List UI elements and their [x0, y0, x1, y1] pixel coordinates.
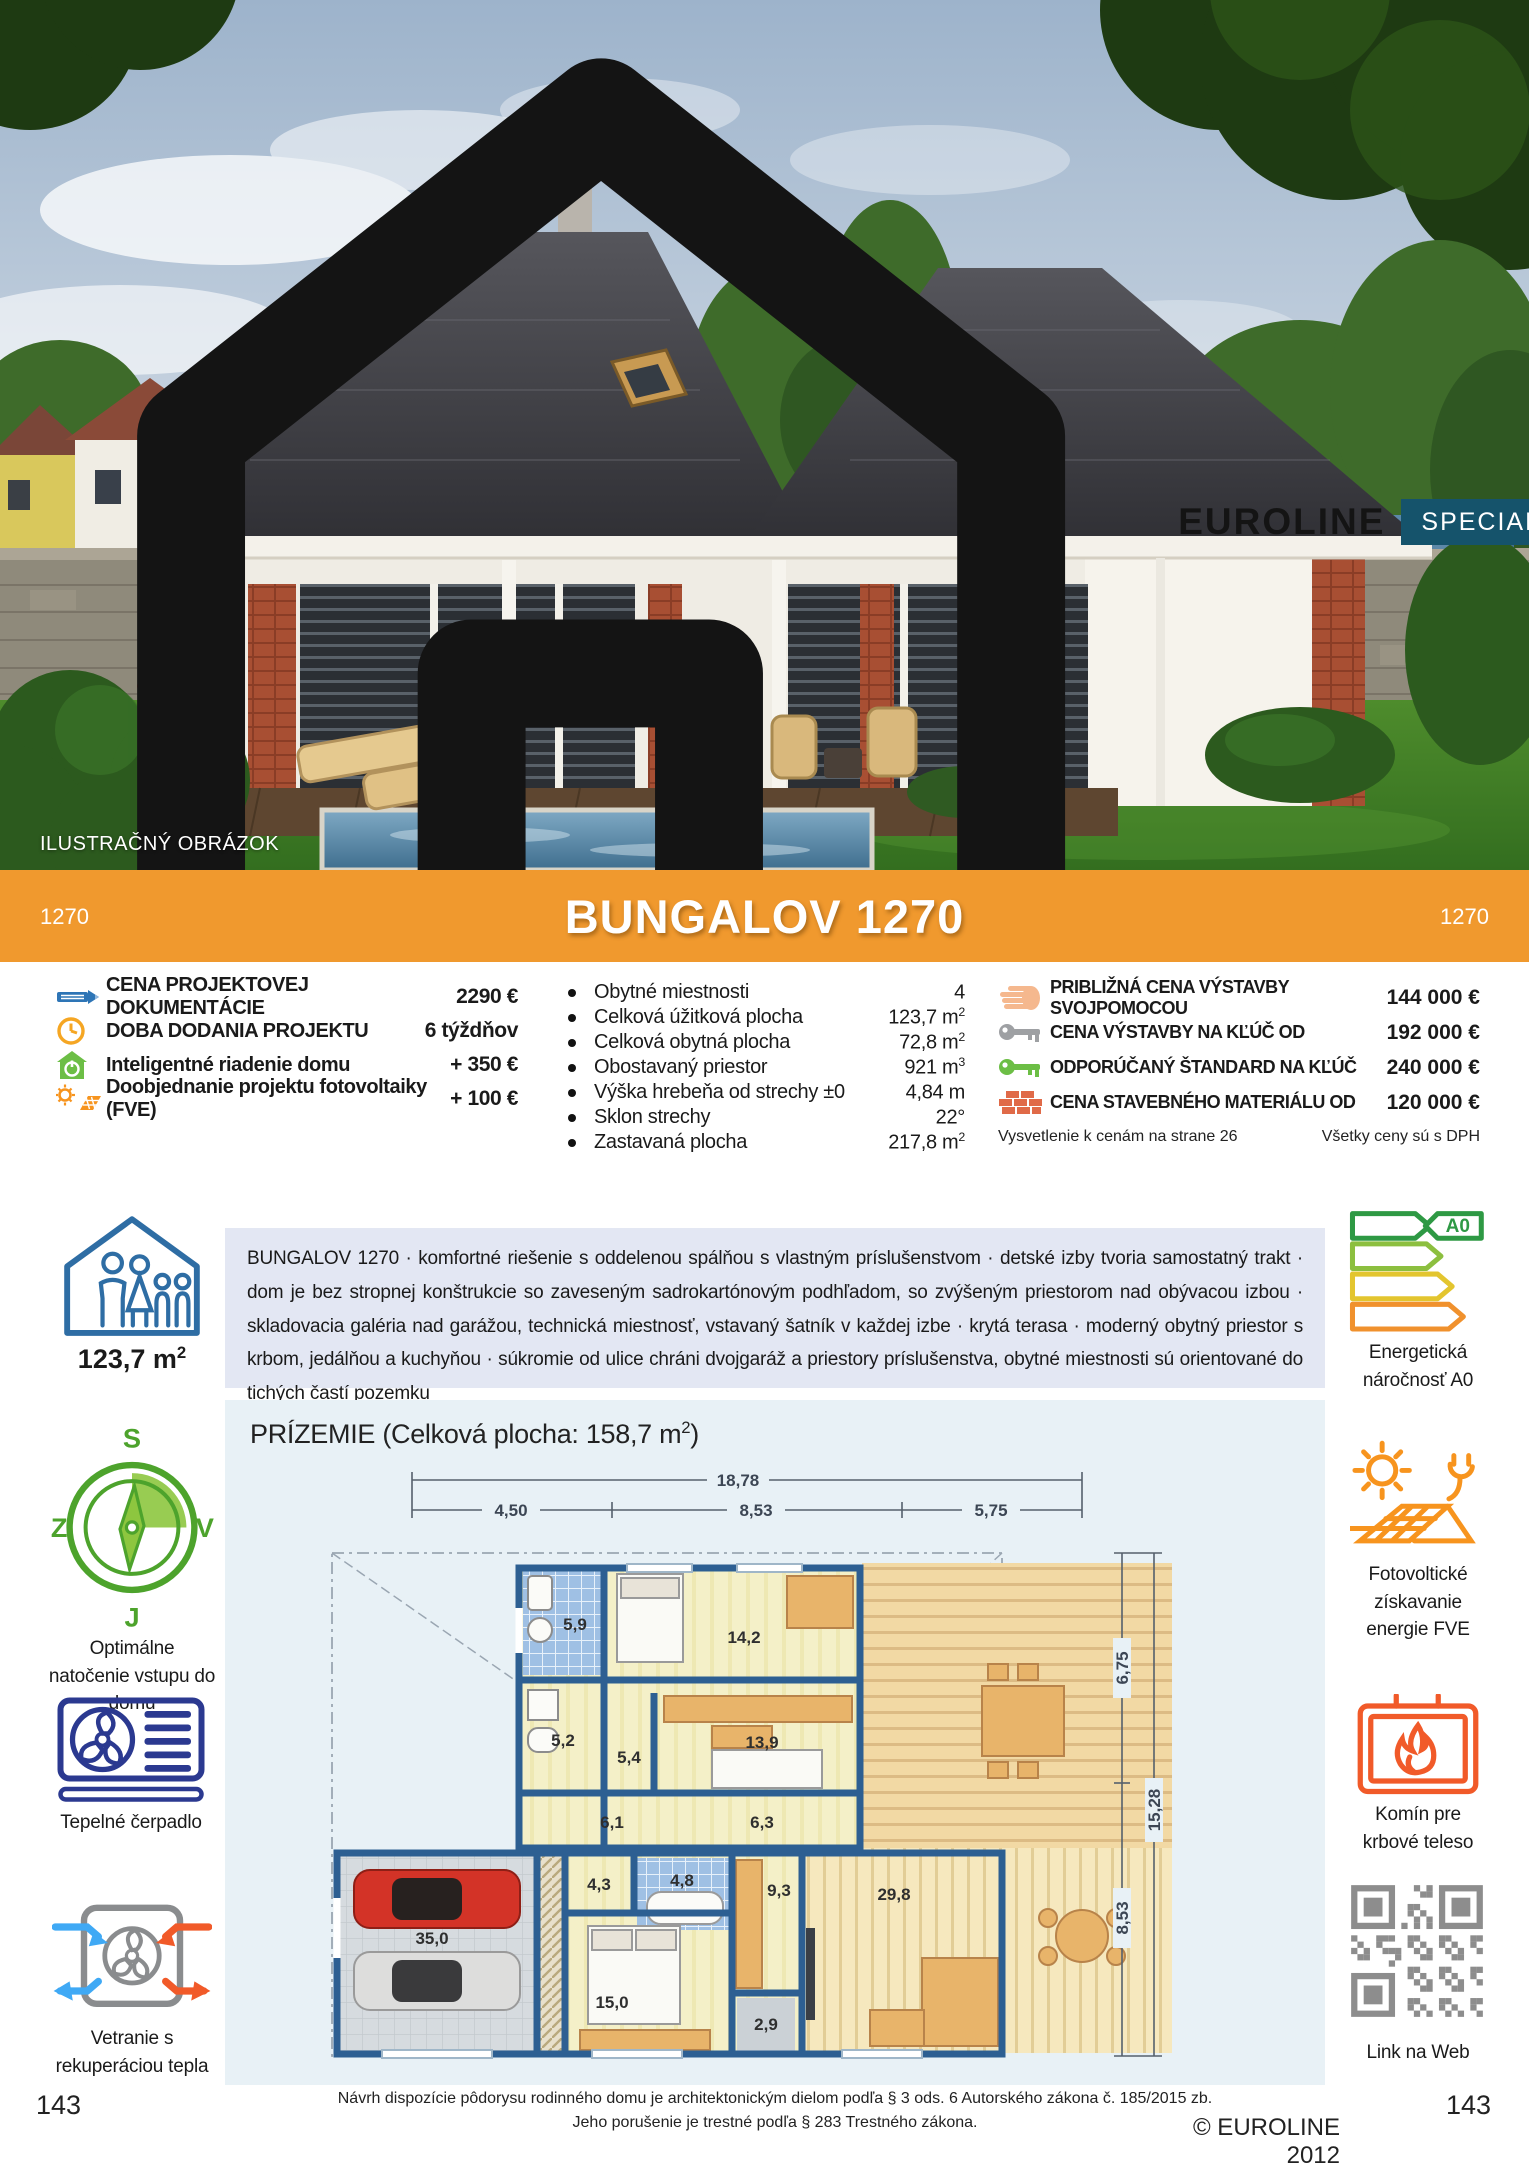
svg-text:A0: A0	[1446, 1216, 1470, 1237]
svg-text:6,3: 6,3	[750, 1813, 774, 1832]
price-row: DOBA DODANIA PROJEKTU 6 týždňov	[56, 1014, 518, 1048]
euroline-house-icon	[40, 26, 1162, 870]
usable-area-block: 123,7 m2	[52, 1210, 212, 1375]
photovoltaics-icon	[1350, 1438, 1486, 1556]
photo-caption: ILUSTRAČNÝ OBRÁZOK	[40, 833, 279, 856]
svg-text:J: J	[124, 1602, 139, 1630]
floorplan-drawing: 5,9 14,2 5,2 5,4 13,9 6,1 6,3 4,3 4,8 9,…	[282, 1458, 1182, 2078]
svg-text:Z: Z	[51, 1512, 68, 1543]
photovoltaics-label: Fotovoltické získavanie energie FVE	[1350, 1561, 1486, 1644]
project-code-right: 1270	[1440, 904, 1489, 930]
pencil-icon	[56, 986, 106, 1008]
spec-row: Celková obytná plocha72,8 m2	[560, 1030, 965, 1055]
svg-text:5,4: 5,4	[617, 1748, 641, 1767]
house-family-icon	[52, 1210, 212, 1338]
svg-text:2,9: 2,9	[754, 2015, 778, 2034]
svg-text:5,75: 5,75	[974, 1501, 1007, 1520]
bullet-icon	[568, 989, 576, 997]
page-number-right: 143	[1435, 2090, 1491, 2121]
key-grey-icon	[998, 1022, 1050, 1044]
svg-text:15,0: 15,0	[595, 1993, 628, 2012]
price-note-right: Všetky ceny sú s DPH	[1322, 1128, 1480, 1146]
description-text: BUNGALOV 1270 · komfortné riešenie s odd…	[247, 1242, 1303, 1411]
spec-row: Celková úžitková plocha123,7 m2	[560, 1005, 965, 1030]
svg-text:5,2: 5,2	[551, 1731, 575, 1750]
svg-text:6,1: 6,1	[600, 1813, 624, 1832]
heatpump-label: Tepelné čerpadlo	[56, 1809, 206, 1837]
svg-text:8,53: 8,53	[1113, 1901, 1132, 1934]
euroline-logo: EUROLINE SPECIAL S	[40, 26, 1529, 870]
heatpump-block: Tepelné čerpadlo	[56, 1696, 206, 1837]
key-green-icon	[998, 1057, 1050, 1079]
svg-text:5,9: 5,9	[563, 1615, 587, 1634]
ventilation-icon	[52, 1898, 212, 2020]
clock-icon	[56, 1016, 106, 1046]
brand-name: EUROLINE	[1178, 501, 1385, 543]
photovoltaics-block: Fotovoltické získavanie energie FVE	[1350, 1438, 1486, 1644]
ventilation-label: Vetranie s rekuperáciou tepla	[52, 2025, 212, 2080]
house-photo: EUROLINE SPECIAL S ILUSTRAČNÝ OBRÁZOK	[0, 0, 1529, 870]
special-badge-label: SPECIAL	[1421, 508, 1529, 537]
pricing-left-column: CENA PROJEKTOVEJ DOKUMENTÁCIE 2290 € DOB…	[56, 980, 518, 1116]
page-title: BUNGALOV 1270	[0, 889, 1529, 944]
energy-rating-block: A0 Energetická náročnosť A0	[1348, 1208, 1488, 1394]
spec-row: Zastavaná plocha217,8 m2	[560, 1130, 965, 1155]
bricks-icon	[998, 1090, 1050, 1116]
price-row: CENA PROJEKTOVEJ DOKUMENTÁCIE 2290 €	[56, 980, 518, 1014]
svg-text:35,0: 35,0	[415, 1929, 448, 1948]
svg-text:S: S	[123, 1425, 141, 1454]
fireplace-block: Komín pre krbové teleso	[1354, 1694, 1482, 1856]
price-row: Doobjednanie projektu fotovoltaiky (FVE)…	[56, 1082, 518, 1116]
svg-text:8,53: 8,53	[739, 1501, 772, 1520]
svg-text:4,50: 4,50	[494, 1501, 527, 1520]
price-row: CENA STAVEBNÉHO MATERIÁLU OD 120 000 €	[998, 1085, 1480, 1120]
price-notes: Vysvetlenie k cenám na strane 26 Všetky …	[998, 1128, 1480, 1146]
bullet-icon	[568, 1114, 576, 1122]
spec-row: Sklon strechy22°	[560, 1105, 965, 1130]
price-row: CENA VÝSTAVBY NA KĽÚČ OD 192 000 €	[998, 1015, 1480, 1050]
page-number-left: 143	[36, 2090, 81, 2121]
qr-label: Link na Web	[1348, 2039, 1488, 2067]
price-note-left: Vysvetlenie k cenám na strane 26	[998, 1128, 1238, 1146]
svg-text:14,2: 14,2	[727, 1628, 760, 1647]
spec-row: Obostavaný priestor921 m3	[560, 1055, 965, 1080]
usable-area-value: 123,7 m2	[52, 1343, 212, 1375]
smart-home-icon	[56, 1050, 106, 1080]
price-row: PRIBLIŽNÁ CENA VÝSTAVBY SVOJPOMOCOU 144 …	[998, 980, 1480, 1015]
pricing-right-column: PRIBLIŽNÁ CENA VÝSTAVBY SVOJPOMOCOU 144 …	[998, 980, 1480, 1146]
project-code-left: 1270	[40, 904, 89, 930]
heat-pump-icon	[56, 1696, 206, 1804]
svg-text:29,8: 29,8	[877, 1885, 910, 1904]
title-banner: 1270 BUNGALOV 1270 1270	[0, 870, 1529, 962]
qr-code	[1348, 1882, 1486, 2020]
svg-text:18,78: 18,78	[717, 1471, 760, 1490]
bullet-icon	[568, 1089, 576, 1097]
bullet-icon	[568, 1064, 576, 1072]
hand-icon	[998, 984, 1050, 1012]
price-row: ODPORÚČANÝ ŠTANDARD NA KĽÚČ 240 000 €	[998, 1050, 1480, 1085]
spec-row: Výška hrebeňa od strechy ±04,84 m	[560, 1080, 965, 1105]
energy-rating-label: Energetická náročnosť A0	[1348, 1339, 1488, 1394]
fireplace-label: Komín pre krbové teleso	[1354, 1801, 1482, 1856]
bullet-icon	[568, 1139, 576, 1147]
compass-icon: S V J Z	[48, 1425, 216, 1630]
bullet-icon	[568, 1014, 576, 1022]
spec-row: Obytné miestnosti4	[560, 980, 965, 1005]
svg-text:V: V	[196, 1512, 214, 1543]
svg-text:9,3: 9,3	[767, 1881, 791, 1900]
qr-block: Link na Web	[1348, 1882, 1488, 2067]
footer-legal-line1: Návrh dispozície pôdorysu rodinného domu…	[225, 2090, 1325, 2108]
special-badge: SPECIAL S	[1401, 499, 1529, 545]
description-box: BUNGALOV 1270 · komfortné riešenie s odd…	[225, 1228, 1325, 1388]
ventilation-block: Vetranie s rekuperáciou tepla	[52, 1898, 212, 2080]
specs-column: Obytné miestnosti4 Celková úžitková ploc…	[560, 980, 965, 1155]
svg-text:4,3: 4,3	[587, 1875, 611, 1894]
bullet-icon	[568, 1039, 576, 1047]
photovoltaics-order-icon	[56, 1084, 106, 1114]
energy-rating-icon: A0	[1348, 1208, 1488, 1334]
svg-text:6,75: 6,75	[1113, 1651, 1132, 1684]
svg-text:15,28: 15,28	[1145, 1789, 1164, 1832]
compass-block: S V J Z Optimálne natočenie vstupu do do…	[48, 1425, 216, 1718]
fireplace-icon	[1354, 1694, 1482, 1796]
svg-text:4,8: 4,8	[670, 1871, 694, 1890]
floorplan-heading: PRÍZEMIE (Celková plocha: 158,7 m2)	[250, 1418, 699, 1450]
svg-text:13,9: 13,9	[745, 1733, 778, 1752]
copyright: © EUROLINE 2012	[1140, 2114, 1340, 2170]
